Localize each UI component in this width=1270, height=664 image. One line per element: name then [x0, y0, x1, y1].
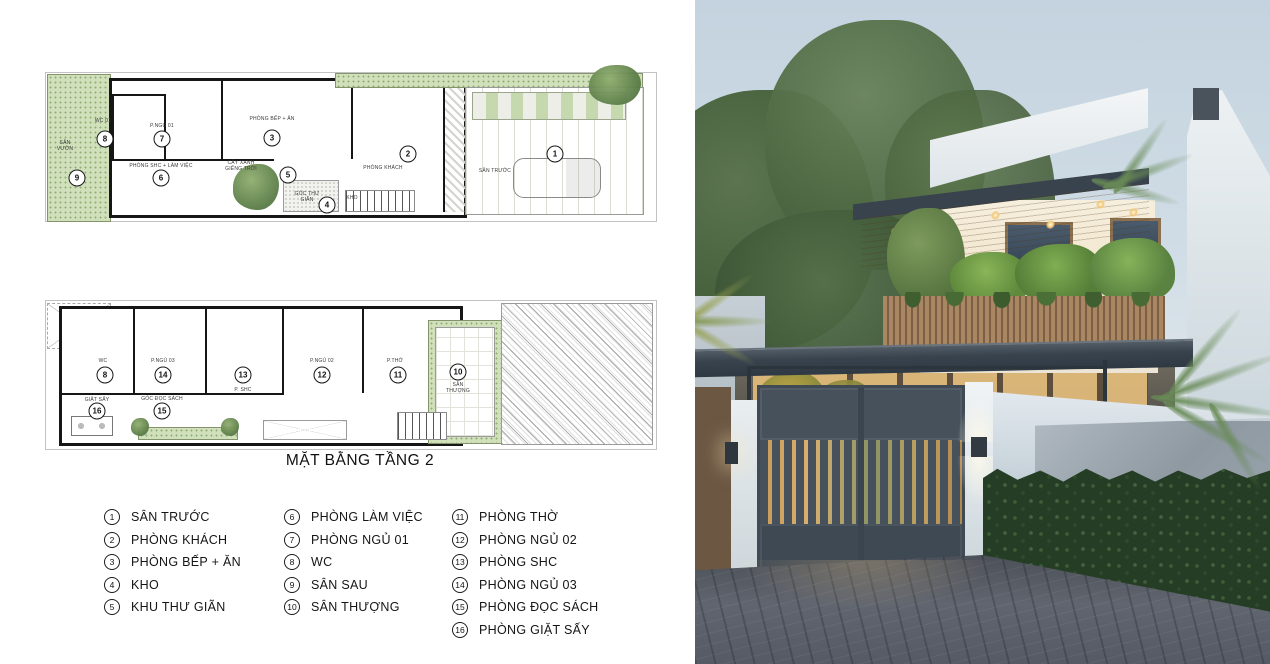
legend-label: KHU THƯ GIÃN: [131, 600, 226, 614]
legend-number: 14: [452, 577, 468, 593]
plan1-corner-tree: [589, 65, 641, 105]
legend-number: 11: [452, 509, 468, 525]
fence-lamp: [725, 442, 738, 464]
room-circle: 10: [450, 364, 467, 381]
house-render-photo: [695, 0, 1270, 664]
plan2-drying-deck: [263, 420, 347, 440]
legend-item: 13PHÒNG SHC: [452, 554, 599, 570]
plan2-laundry-machines: [71, 416, 113, 436]
legend-label: SÂN SAU: [311, 578, 368, 592]
legend-label: PHÒNG THỜ: [479, 510, 558, 524]
legend-label: PHÒNG KHÁCH: [131, 533, 227, 547]
legend-number: 16: [452, 622, 468, 638]
legend-number: 8: [284, 554, 300, 570]
legend-item: 3PHÒNG BẾP + ĂN: [104, 554, 241, 570]
legend-label: PHÒNG NGỦ 03: [479, 578, 577, 592]
legend-number: 5: [104, 599, 120, 615]
plan-title: MẶT BẰNG TẦNG 2: [45, 452, 675, 470]
legend-column-3: 11PHÒNG THỜ 12PHÒNG NGỦ 02 13PHÒNG SHC 1…: [452, 509, 599, 638]
legend-item: 5KHU THƯ GIÃN: [104, 599, 241, 615]
legend-number: 7: [284, 532, 300, 548]
room-circle: 5: [280, 167, 297, 184]
plan2-wall: [362, 309, 364, 393]
legend-label: PHÒNG LÀM VIỆC: [311, 510, 423, 524]
legend-item: 2PHÒNG KHÁCH: [104, 532, 241, 548]
plan2-reading-plant: [131, 418, 149, 436]
plan2-stairs: [397, 412, 447, 440]
legend-column-2: 6PHÒNG LÀM VIỆC 7PHÒNG NGỦ 01 8WC 9SÂN S…: [284, 509, 423, 615]
legend-label: PHÒNG NGỦ 01: [311, 533, 409, 547]
room-label: CÂY XANH GIẾNG TRỜI: [220, 160, 262, 172]
room-label: GÓC ĐỌC SÁCH: [120, 396, 204, 402]
legend-label: PHÒNG SHC: [479, 555, 557, 569]
room-label: PHÒNG KHÁCH: [343, 165, 423, 171]
room-label: P. SHC: [223, 387, 263, 393]
room-circle: 15: [154, 403, 171, 420]
room-circle: 14: [155, 367, 172, 384]
room-circle: 12: [314, 367, 331, 384]
room-circle: 8: [97, 131, 114, 148]
entrance-gate: [757, 385, 965, 577]
legend-label: KHO: [131, 578, 159, 592]
legend-number: 1: [104, 509, 120, 525]
plan1-stairs: [345, 190, 415, 212]
plan2-roof-hatch: [501, 303, 653, 445]
room-circle: 6: [153, 170, 170, 187]
room-circle: 11: [390, 367, 407, 384]
legend-item: 1SÂN TRƯỚC: [104, 509, 241, 525]
legend-number: 2: [104, 532, 120, 548]
legend-item: 14PHÒNG NGỦ 03: [452, 577, 599, 593]
room-circle: 9: [69, 170, 86, 187]
plan1-wall: [221, 81, 223, 159]
page: { "title": "MẶT BẰNG TẦNG 2", "plan1": {…: [0, 0, 1270, 664]
room-label: KHO: [340, 195, 364, 201]
room-label: SÂN THƯỢNG: [440, 382, 476, 394]
gate-center-stile: [858, 388, 864, 574]
plan2-wall: [133, 309, 135, 393]
wall-lamp: [971, 437, 987, 457]
room-label: WC 01: [88, 118, 118, 124]
legend-item: 8WC: [284, 554, 423, 570]
carport-beam: [747, 366, 1107, 369]
room-label: P.NGỦ 02: [296, 358, 348, 364]
room-label: P.THỜ: [377, 358, 413, 364]
room-circle: 1: [547, 146, 564, 163]
legend-label: PHÒNG GIẶT SẤY: [479, 623, 590, 637]
room-circle: 13: [235, 367, 252, 384]
legend-label: SÂN THƯỢNG: [311, 600, 400, 614]
legend-item: 10SÂN THƯỢNG: [284, 599, 423, 615]
room-label: PHÒNG SHC + LÀM VIỆC: [105, 163, 217, 169]
legend-number: 3: [104, 554, 120, 570]
legend-item: 9SÂN SAU: [284, 577, 423, 593]
legend-item: 12PHÒNG NGỦ 02: [452, 532, 599, 548]
legend-number: 15: [452, 599, 468, 615]
gate-light-pool: [735, 560, 995, 610]
legend-column-1: 1SÂN TRƯỚC 2PHÒNG KHÁCH 3PHÒNG BẾP + ĂN …: [104, 509, 241, 615]
plan1-wall: [351, 81, 353, 159]
downlight: [1129, 207, 1138, 217]
legend-item: 6PHÒNG LÀM VIỆC: [284, 509, 423, 525]
plan2-wall: [62, 393, 284, 395]
downlight: [1046, 220, 1055, 230]
floor-plan-2: 8 14 13 12 11 10 16 15 WC P.NGỦ 03 P. SH…: [45, 300, 657, 450]
room-label: P.NGỦ 01: [136, 123, 188, 129]
room-label: WC: [92, 358, 114, 364]
legend-label: WC: [311, 555, 332, 569]
room-circle: 2: [400, 146, 417, 163]
legend-item: 4KHO: [104, 577, 241, 593]
legend-number: 4: [104, 577, 120, 593]
room-circle: 3: [264, 130, 281, 147]
legend-number: 13: [452, 554, 468, 570]
plan1-car: [513, 158, 601, 198]
room-label: PHÒNG BẾP + ĂN: [249, 116, 295, 122]
downlight: [1096, 199, 1105, 209]
room-label: SÂN TRƯỚC: [478, 168, 512, 174]
legend-item: 7PHÒNG NGỦ 01: [284, 532, 423, 548]
room-circle: 16: [89, 403, 106, 420]
plan1-entry-strip: [443, 87, 467, 212]
plan2-wall: [205, 309, 207, 393]
plan2-wall: [282, 309, 284, 393]
room-label: P.NGỦ 03: [137, 358, 189, 364]
legend-number: 6: [284, 509, 300, 525]
legend-item: 11PHÒNG THỜ: [452, 509, 599, 525]
legend-number: 12: [452, 532, 468, 548]
side-wall-cap: [1193, 88, 1219, 120]
legend-label: SÂN TRƯỚC: [131, 510, 210, 524]
room-circle: 8: [97, 367, 114, 384]
plan2-reading-plant: [221, 418, 239, 436]
hanging-plants: [885, 292, 1163, 318]
legend-item: 15PHÒNG ĐỌC SÁCH: [452, 599, 599, 615]
room-circle: 7: [154, 131, 171, 148]
downlight: [991, 210, 1000, 220]
floor-plan-1: 9 8 7 6 3 5 4 2 1 SÂN VƯỜN WC 01 P.NGỦ 0…: [45, 72, 657, 222]
legend-number: 10: [284, 599, 300, 615]
legend-item: 16PHÒNG GIẶT SẤY: [452, 622, 599, 638]
legend-number: 9: [284, 577, 300, 593]
legend-label: PHÒNG ĐỌC SÁCH: [479, 600, 599, 614]
legend-label: PHÒNG NGỦ 02: [479, 533, 577, 547]
legend-label: PHÒNG BẾP + ĂN: [131, 555, 241, 569]
room-label: SÂN VƯỜN: [52, 140, 78, 152]
room-circle: 4: [319, 197, 336, 214]
